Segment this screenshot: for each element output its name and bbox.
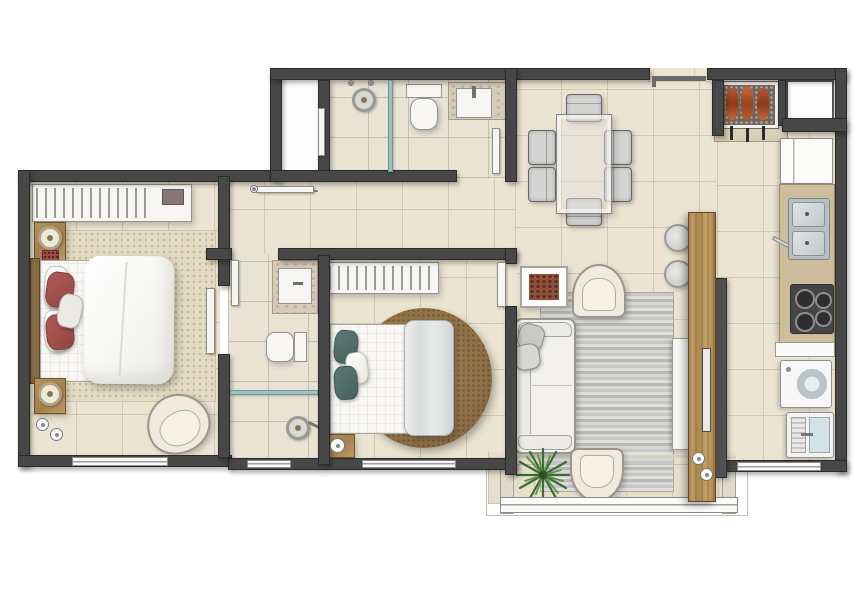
master-bed-headboard	[30, 258, 40, 384]
table-lamp	[38, 226, 62, 250]
wall	[206, 248, 232, 260]
table-lamp	[38, 382, 62, 406]
picture-art	[529, 274, 559, 300]
wall	[278, 248, 517, 260]
cooktop	[790, 284, 834, 334]
closet-floor	[282, 78, 318, 172]
wall	[18, 170, 30, 467]
wall	[318, 255, 330, 465]
window	[247, 460, 291, 468]
armchair-seat	[582, 278, 616, 311]
dining-chair	[528, 167, 556, 202]
washer-knob	[786, 367, 791, 372]
shower-head	[352, 88, 376, 112]
burner	[815, 292, 832, 309]
armchair-seat	[580, 455, 614, 488]
wall	[270, 170, 457, 182]
skewer-handle	[730, 126, 733, 140]
panel-decor	[692, 452, 705, 465]
wall	[505, 68, 517, 182]
wall	[707, 68, 847, 80]
toilet-bowl	[266, 332, 294, 362]
washing-machine	[780, 360, 832, 408]
floor-decor	[50, 428, 63, 441]
burner	[795, 312, 815, 332]
counter-bench	[775, 342, 835, 357]
wall	[712, 80, 724, 136]
master-duvet	[83, 256, 174, 385]
bedroom-2-door-leaf	[497, 262, 506, 307]
glass-dining-table	[556, 114, 612, 214]
sink-drain	[805, 212, 809, 216]
shower-head	[286, 416, 310, 440]
bathroom-1-door-leaf	[492, 128, 500, 174]
faucet	[472, 86, 476, 98]
plant-foliage	[514, 446, 572, 504]
tv	[702, 348, 711, 432]
meat-skewer	[741, 86, 753, 120]
floor-plan	[0, 0, 867, 600]
master-door-leaf	[206, 288, 215, 354]
dining-chair	[528, 130, 556, 165]
toilet-tank	[406, 84, 442, 98]
armchair-seat	[154, 404, 207, 454]
shower-knob	[368, 80, 374, 86]
shower-knob	[348, 80, 354, 86]
wall	[18, 170, 282, 182]
closet-panel	[318, 108, 325, 156]
wall	[218, 354, 230, 458]
entry-door-hinge	[652, 76, 656, 87]
shower-glass-partition	[230, 390, 318, 395]
tank-faucet	[801, 433, 813, 436]
window	[362, 460, 456, 468]
refrigerator	[780, 138, 833, 184]
wall	[270, 68, 282, 176]
folded-blanket	[404, 320, 454, 436]
wardrobe-hangers	[329, 266, 435, 290]
duvet-fold	[119, 262, 128, 376]
laundry-tank	[786, 412, 834, 458]
sink-drain	[805, 241, 809, 245]
burner	[795, 289, 815, 309]
wall	[505, 306, 517, 475]
wall	[782, 118, 847, 132]
burner	[815, 310, 832, 327]
folded-clothes	[162, 189, 184, 205]
entry-door-leaf	[652, 76, 706, 81]
washer-door	[797, 369, 827, 399]
sliding-door-handle	[250, 185, 258, 193]
floor-decor	[36, 418, 49, 431]
teal-pillow	[333, 365, 359, 401]
panel-decor	[700, 468, 713, 481]
decor-basket	[330, 438, 345, 453]
potted-plant	[514, 446, 572, 504]
kitchen-half-wall	[715, 278, 727, 478]
bathroom-2-door-leaf	[231, 260, 239, 306]
toilet-tank	[294, 332, 307, 362]
sink-basin	[278, 268, 312, 304]
wall	[505, 248, 517, 264]
meat-skewer	[726, 88, 738, 120]
wardrobe-hangers	[36, 188, 148, 218]
wall	[218, 176, 230, 286]
double-sink	[788, 198, 830, 260]
skewer-handle	[762, 126, 765, 140]
window	[72, 457, 168, 466]
faucet	[293, 282, 303, 285]
framed-picture	[520, 266, 568, 308]
shower-glass-partition	[388, 80, 393, 172]
closet-sliding-door	[256, 186, 314, 193]
window	[737, 462, 821, 471]
meat-skewer	[757, 88, 769, 120]
toilet-bowl	[410, 98, 438, 130]
skewer-handle	[746, 128, 749, 142]
wall	[270, 68, 650, 80]
